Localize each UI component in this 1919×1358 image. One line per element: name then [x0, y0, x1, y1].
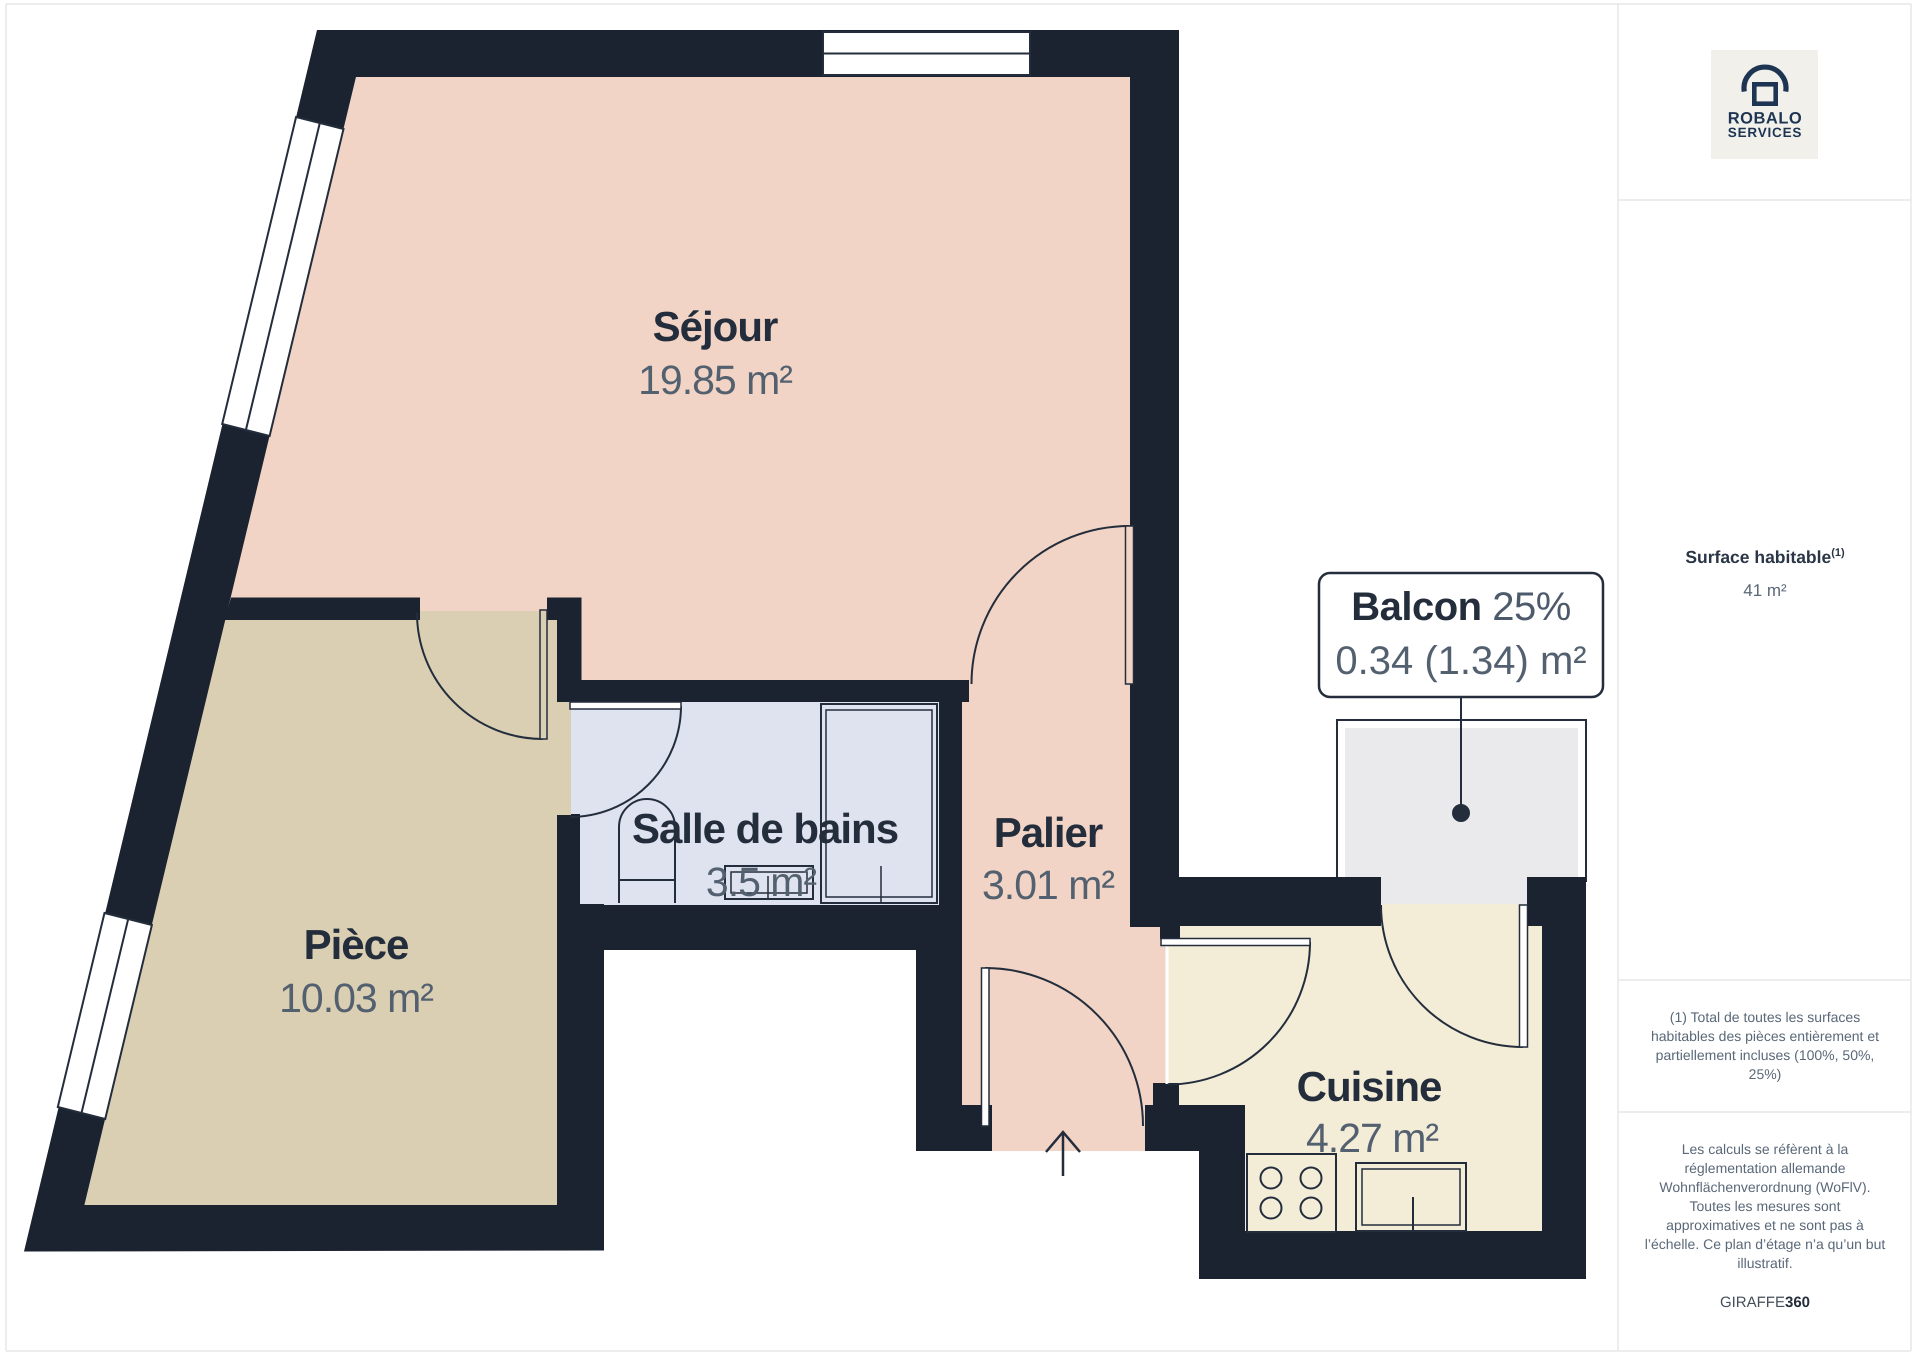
svg-text:partiellement incluses (100%,: partiellement incluses (100%, 50%, — [1656, 1047, 1875, 1063]
svg-text:SERVICES: SERVICES — [1728, 125, 1802, 140]
svg-text:Toutes les mesures sont: Toutes les mesures sont — [1690, 1198, 1841, 1214]
svg-text:Palier: Palier — [994, 809, 1103, 856]
svg-text:(1) Total de toutes les surfac: (1) Total de toutes les surfaces — [1670, 1009, 1860, 1025]
svg-text:Cuisine: Cuisine — [1297, 1063, 1442, 1110]
svg-text:3.01 m²: 3.01 m² — [982, 862, 1114, 908]
svg-text:approximatives et ne sont pas: approximatives et ne sont pas à — [1666, 1217, 1864, 1233]
svg-text:0.34 (1.34) m²: 0.34 (1.34) m² — [1335, 639, 1586, 683]
svg-text:réglementation allemande: réglementation allemande — [1684, 1160, 1845, 1176]
svg-text:Balcon 25%: Balcon 25% — [1351, 585, 1571, 629]
svg-text:GIRAFFE360: GIRAFFE360 — [1720, 1294, 1810, 1311]
svg-text:Surface habitable(1): Surface habitable(1) — [1685, 547, 1845, 567]
svg-text:Pièce: Pièce — [304, 921, 409, 968]
svg-text:habitables des pièces entièrem: habitables des pièces entièrement et — [1651, 1028, 1879, 1044]
svg-text:3.5 m²: 3.5 m² — [706, 859, 817, 905]
svg-text:10.03 m²: 10.03 m² — [279, 975, 433, 1021]
svg-text:Wohnflächenverordnung (WoFlV).: Wohnflächenverordnung (WoFlV). — [1659, 1179, 1870, 1195]
svg-text:illustratif.: illustratif. — [1737, 1255, 1792, 1271]
svg-text:Salle de bains: Salle de bains — [632, 805, 898, 852]
svg-text:Séjour: Séjour — [653, 303, 778, 350]
svg-text:25%): 25%) — [1749, 1066, 1782, 1082]
svg-text:4.27 m²: 4.27 m² — [1306, 1115, 1438, 1161]
svg-text:l’échelle. Ce plan d’étage n’a: l’échelle. Ce plan d’étage n’a qu’un but — [1645, 1236, 1886, 1252]
svg-text:Les calculs se réfèrent à la: Les calculs se réfèrent à la — [1682, 1141, 1849, 1157]
svg-text:41 m²: 41 m² — [1743, 581, 1787, 600]
svg-text:19.85 m²: 19.85 m² — [638, 357, 792, 403]
